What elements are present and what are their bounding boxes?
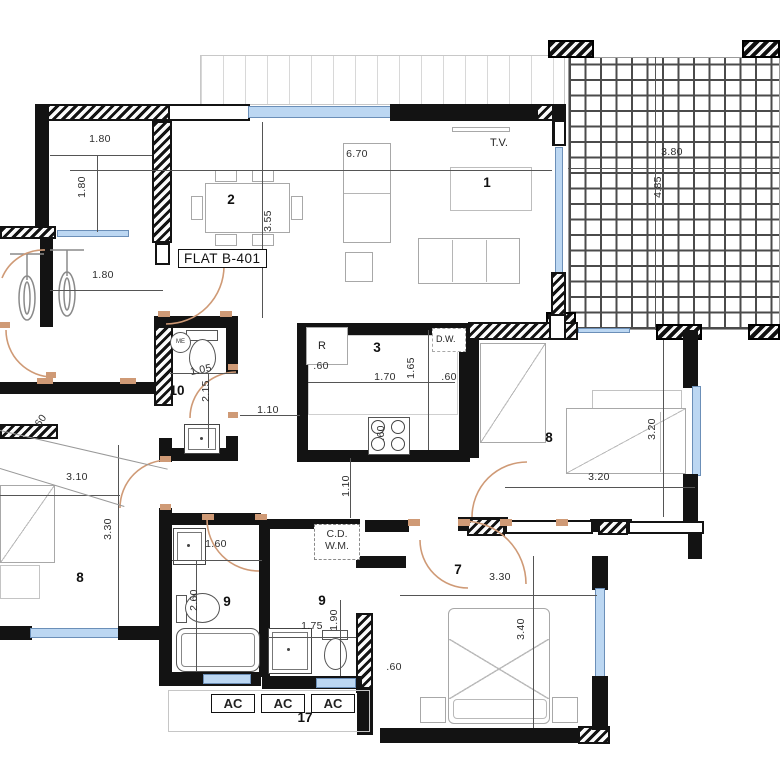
door-jamb [0,322,10,328]
dim-line [172,560,262,561]
dim-text: 3.20 [577,471,621,483]
door-arc [472,462,527,517]
ac-unit-1: AC [211,694,255,713]
door-jamb [408,519,420,526]
ac-unit-3: AC [311,694,355,713]
door-jamb [220,311,232,317]
door-jamb [500,519,512,526]
dim-line [97,155,98,232]
dim-line [0,495,120,496]
dim-text: .60 [375,411,387,455]
door-jamb [228,364,238,370]
dim-text: 2.15 [200,369,212,413]
dim-text: 1.10 [340,464,352,508]
door-arc [6,330,53,377]
room-label-bath-left: 9 [212,594,242,609]
door-jamb [228,412,238,418]
dim-line [50,155,152,156]
dim-text: 1.80 [81,269,125,281]
dim-line [340,600,341,676]
door-jamb [120,378,136,384]
ac-unit-2: AC [261,694,305,713]
dim-text: 1.80 [76,165,88,209]
dim-text: .60 [372,661,416,673]
room-label-dining: 2 [216,192,246,207]
room-label-wc: 10 [162,383,192,398]
dim-text: 3.80 [650,146,694,158]
room-label-bedroom-left: 8 [65,570,95,585]
door-jamb [556,519,568,526]
dim-line [400,595,597,596]
tv-label: T.V. [490,137,508,149]
dim-text: 3.20 [646,407,658,451]
door-jamb [255,514,267,520]
room-label-living: 1 [472,175,502,190]
dim-text: 3.30 [102,507,114,551]
dim-text: 1.65 [405,346,417,390]
dim-text: 3.10 [55,471,99,483]
door-jamb [160,456,171,462]
door-arc [2,250,45,278]
dim-line [663,340,664,517]
floor-plan: ME C.D. W.M. [0,0,780,780]
dim-text: 1.60 [194,538,238,550]
dim-text: .60 [427,371,471,383]
room-label-hall: 7 [443,562,473,577]
dim-text: 3.55 [262,199,274,243]
door-jamb [458,519,470,526]
door-arc [166,266,224,324]
dim-line [268,637,356,638]
dim-text: 3.40 [515,607,527,651]
room-label-kitchen: 3 [362,340,392,355]
dim-line [568,168,780,169]
door-jamb [202,514,214,520]
dim-text: .60 [299,360,343,372]
dim-line [50,290,163,291]
dim-line [118,445,119,626]
dim-line [505,487,695,488]
dim-text: 1.80 [78,133,122,145]
fridge-label: R [318,340,326,352]
dim-line [428,330,429,450]
door-jamb [160,504,171,510]
dim-line [70,170,552,171]
dim-text: 6.70 [335,148,379,160]
dim-line [533,556,534,728]
dishwasher-label: D.W. [436,334,456,344]
dim-text: 3.30 [478,571,522,583]
room-label-bedroom-right: 8 [534,430,564,445]
dim-text: 1.10 [246,404,290,416]
dim-text: 2.60 [188,578,200,622]
room-label-bath-mid: 9 [307,593,337,608]
dim-text: 1.70 [363,371,407,383]
door-jamb [37,378,53,384]
door-jamb [158,311,170,317]
flat-label: FLAT B-401 [178,249,267,268]
dim-text: 4.85 [652,165,664,209]
